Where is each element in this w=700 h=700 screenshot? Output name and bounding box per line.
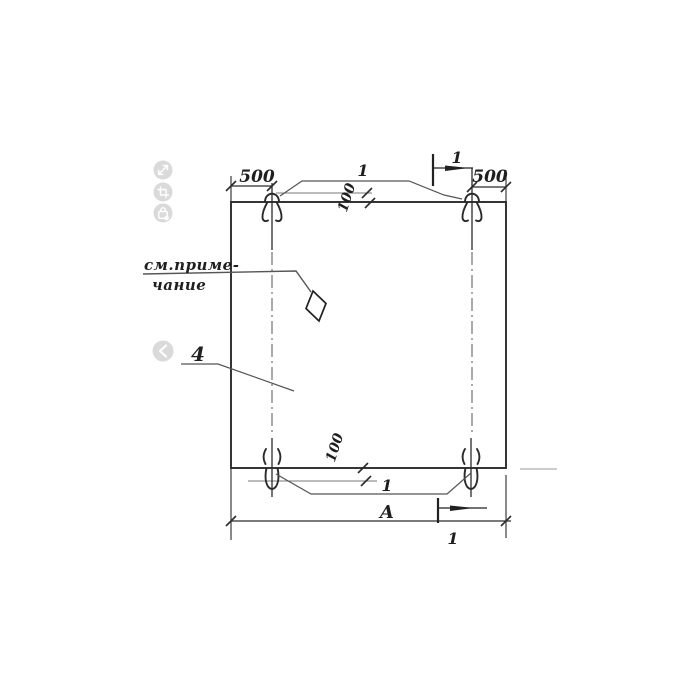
dim-500-left-label: 500 xyxy=(239,167,275,187)
lock-icon[interactable] xyxy=(154,204,173,223)
note-text-line1: см.приме- xyxy=(144,256,239,274)
dimension-lines xyxy=(231,186,511,521)
offset-100-bottom-label: 100 xyxy=(323,431,347,464)
section-top-label: 1 xyxy=(451,148,462,167)
offset-100-top-label: 100 xyxy=(335,181,359,214)
section-bottom-label: 1 xyxy=(447,529,458,548)
expand-icon[interactable] xyxy=(154,161,173,180)
crop-icon[interactable] xyxy=(154,183,173,202)
leader-bottom-loops xyxy=(276,473,471,494)
technical-drawing: 500 500 1 1 100 100 1 А 1 4 см.приме- ча… xyxy=(0,0,700,700)
chevron-left-icon[interactable] xyxy=(153,341,174,362)
note-text-line2: чание xyxy=(152,276,206,294)
item-4-leader xyxy=(181,364,294,391)
section-mark-bottom xyxy=(438,498,487,523)
dimension-ticks xyxy=(226,181,511,526)
item-4-label: 4 xyxy=(191,342,205,366)
drawing-page: 500 500 1 1 100 100 1 А 1 4 см.приме- ча… xyxy=(0,0,700,700)
overall-width-label: А xyxy=(378,502,395,523)
loop-axis-solid xyxy=(272,168,472,497)
note-diamond xyxy=(306,291,326,321)
dim-500-right-label: 500 xyxy=(472,167,508,187)
loops-ref-bottom-label: 1 xyxy=(381,476,392,495)
loops-ref-top-label: 1 xyxy=(357,161,368,180)
